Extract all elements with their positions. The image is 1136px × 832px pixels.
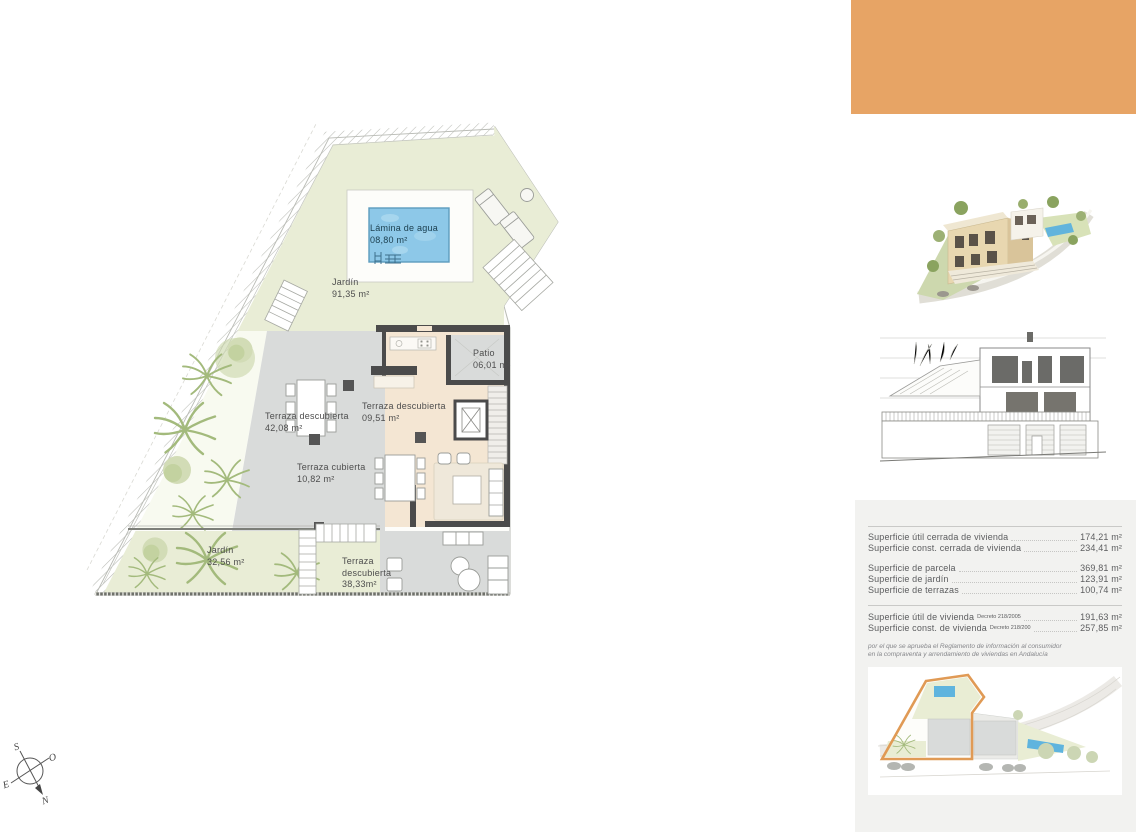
- table-row: Superficie de jardín 123,91 m²: [868, 574, 1122, 585]
- terraza-38-label: Terraza descubierta 38,33m²: [342, 556, 391, 591]
- orange-banner: [851, 0, 1136, 114]
- terraza-09-label: Terraza descubierta09,51 m²: [362, 401, 446, 424]
- pool-area-label: Lámina de agua08,80 m²: [370, 223, 438, 246]
- table-row: Superficie de terrazas 100,74 m²: [868, 585, 1122, 596]
- patio-label: Patio06,01 m²: [473, 348, 511, 371]
- summary-group-plot: Superficie de parcela 369,81 m² Superfic…: [868, 563, 1122, 596]
- terraza-42-label: Terraza descubierta42,08 m²: [265, 411, 349, 434]
- elevator: [455, 401, 487, 439]
- table-row: Superficie útil cerrada de vivienda 174,…: [868, 532, 1122, 543]
- aerial-render-image: [903, 176, 1095, 314]
- staircase: [488, 386, 507, 464]
- legal-note: por el que se aprueba el Reglamento de i…: [868, 643, 1063, 659]
- surface-summary-panel: Superficie útil cerrada de vivienda 174,…: [855, 500, 1136, 832]
- svg-text:O: O: [48, 752, 58, 765]
- site-plan-thumbnail: [868, 667, 1122, 795]
- table-row: Superficie útil de viviendaDecreto 218/2…: [868, 612, 1122, 623]
- divider: [868, 605, 1122, 606]
- summary-group-closed: Superficie útil cerrada de vivienda 174,…: [868, 532, 1122, 554]
- dining-table-interior: [375, 455, 425, 501]
- divider: [868, 526, 1122, 527]
- garden-bottom-label: Jardín32,56 m²: [207, 545, 245, 568]
- living-room: [434, 453, 503, 520]
- terraza-cubierta-label: Terraza cubierta10,82 m²: [297, 462, 366, 485]
- svg-text:N: N: [40, 794, 52, 806]
- compass-rose-icon: S O E N: [2, 740, 58, 806]
- summary-group-decree: Superficie útil de viviendaDecreto 218/2…: [868, 612, 1122, 634]
- svg-text:S: S: [13, 741, 21, 753]
- svg-text:E: E: [2, 779, 11, 792]
- kitchen: [390, 337, 436, 350]
- table-row: Superficie de parcela 369,81 m²: [868, 563, 1122, 574]
- table-row: Superficie const. de viviendaDecreto 218…: [868, 623, 1122, 634]
- brochure-page: Lámina de agua08,80 m² Jardín91,35 m² Pa…: [0, 0, 1136, 832]
- garden-top-label: Jardín91,35 m²: [332, 277, 370, 300]
- elevation-drawing: [880, 320, 1106, 465]
- table-row: Superficie const. cerrada de vivienda 23…: [868, 543, 1122, 554]
